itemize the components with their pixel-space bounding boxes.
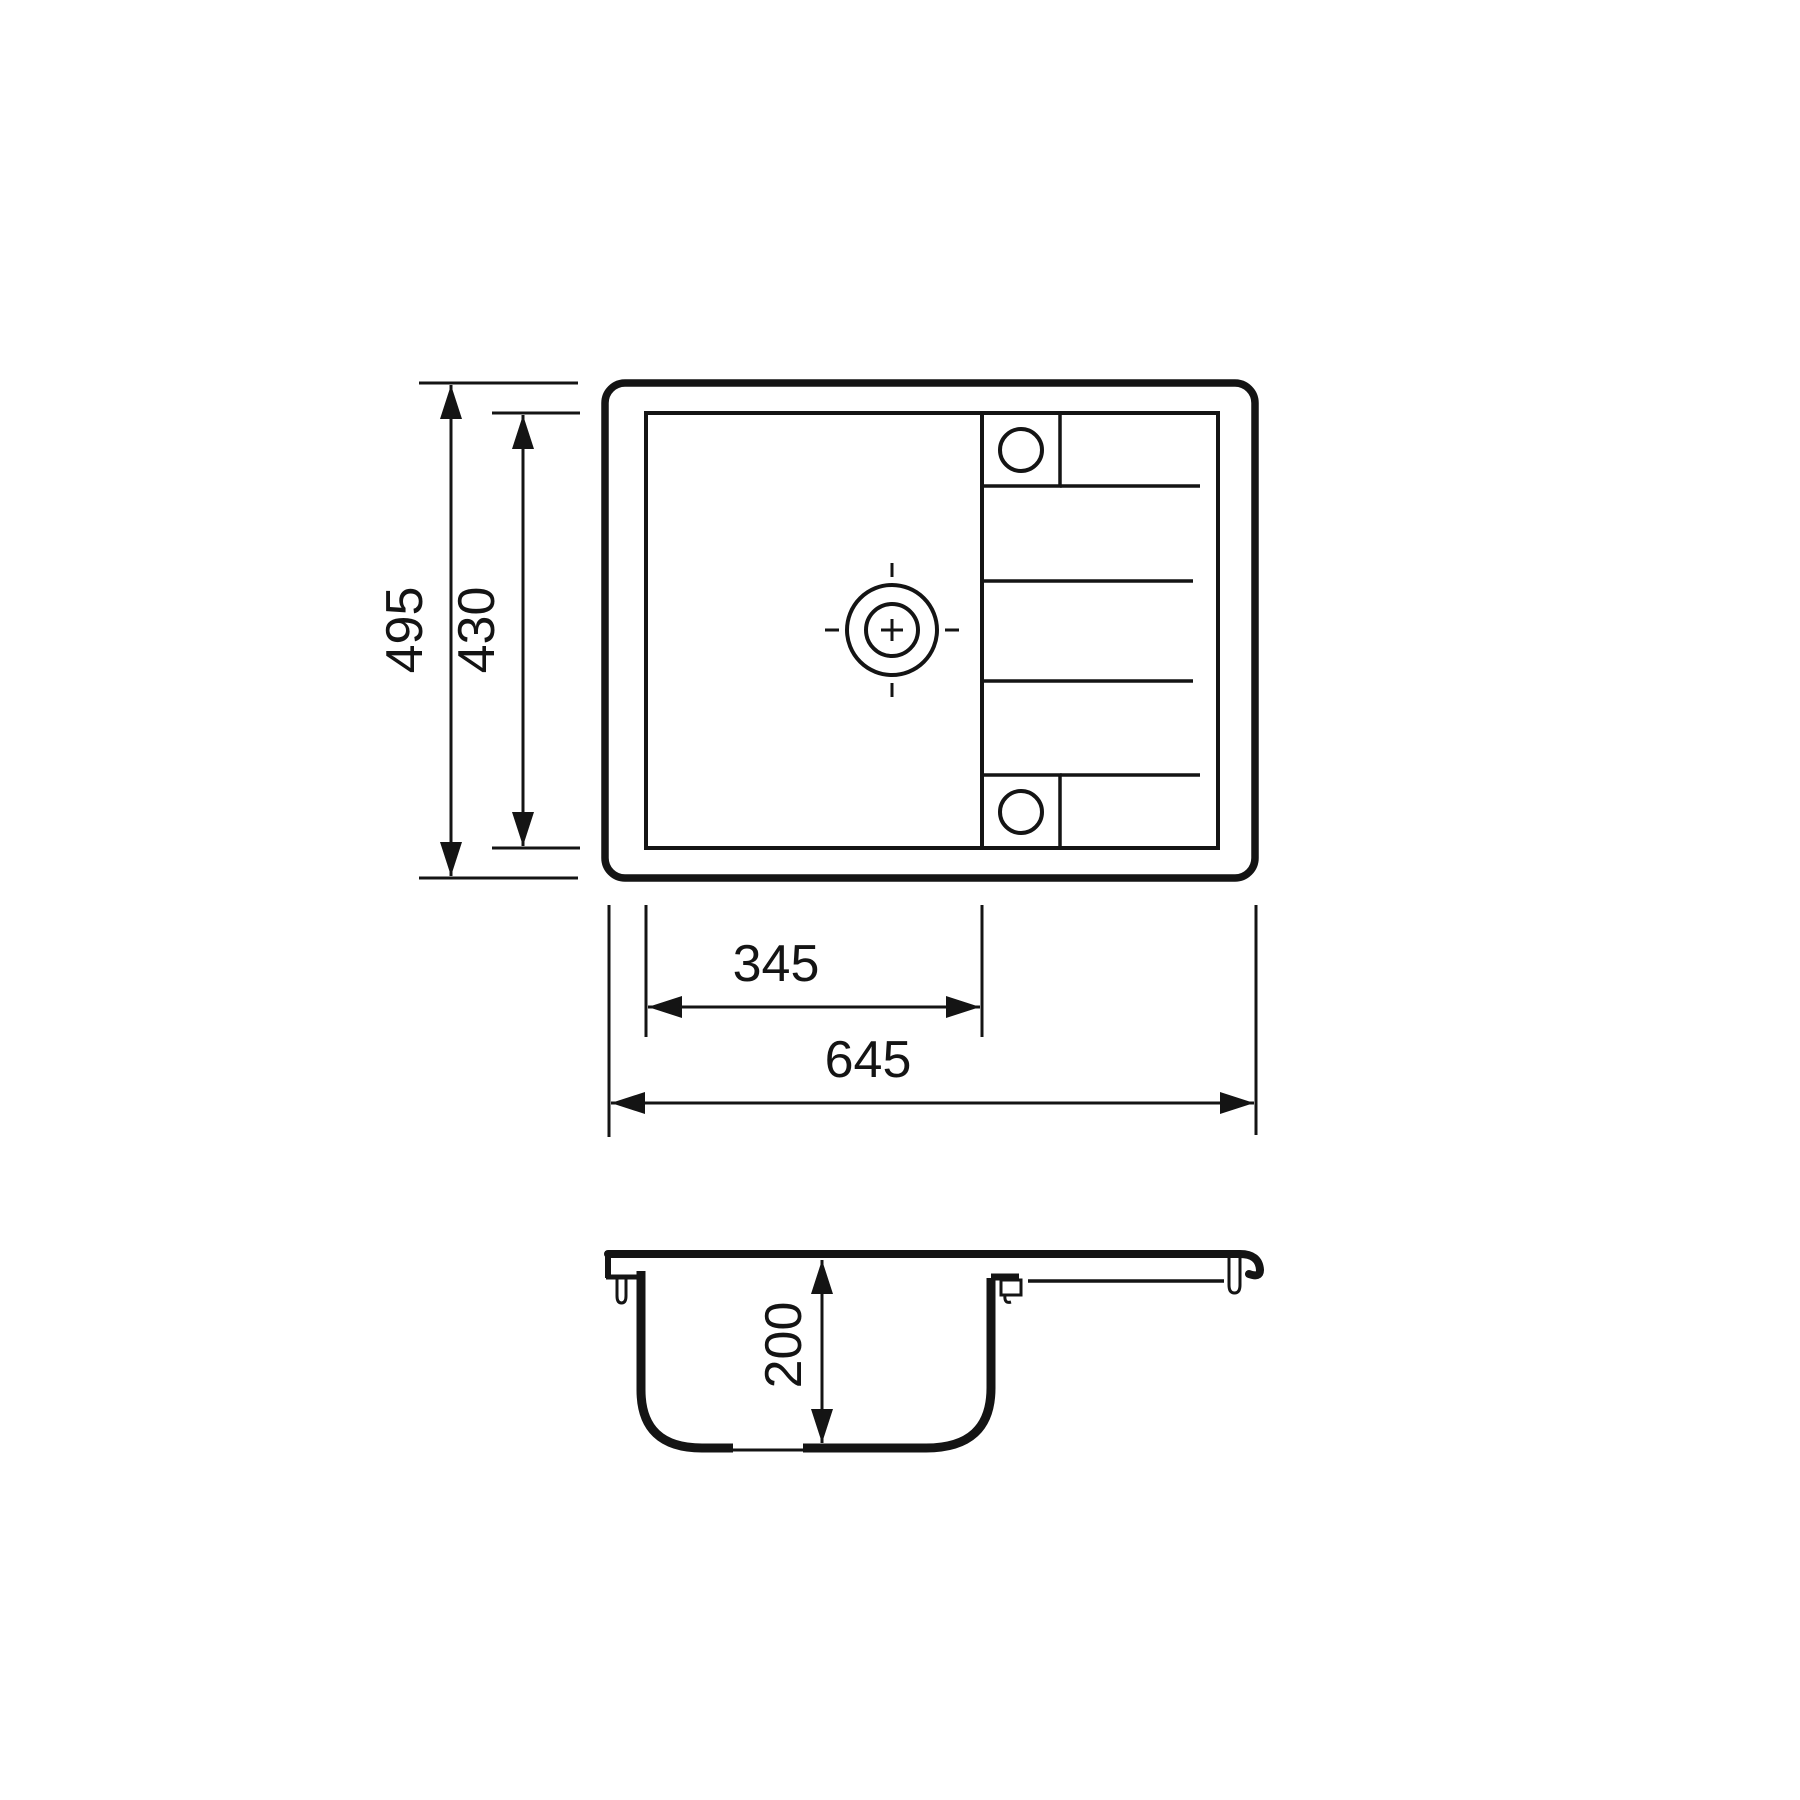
sink-technical-drawing: 495 430 345 645 [0,0,1800,1800]
arrowhead-down [811,1409,833,1443]
arrowhead-left [611,1092,645,1114]
section-right-notch [1001,1280,1021,1295]
technical-drawing-page: 495 430 345 645 [0,0,1800,1800]
section-right-clip-tab [1229,1258,1240,1293]
arrowhead-down [440,842,462,876]
section-view: 200 [606,1251,1260,1457]
arrowhead-right [946,996,980,1018]
dim-label-430: 430 [448,587,506,674]
arrowhead-left [648,996,682,1018]
arrowhead-right [1220,1092,1254,1114]
arrowhead-up [440,385,462,419]
plan-tap-box-top [982,413,1060,486]
plan-tap-hole-bottom [1000,791,1042,833]
arrowhead-down [512,812,534,846]
dim-label-495: 495 [376,587,434,674]
dim-label-200: 200 [755,1302,813,1389]
plan-tap-box-bottom [982,775,1060,848]
arrowhead-up [811,1260,833,1294]
dimension-bowl-width: 345 [646,905,982,1037]
plan-view [605,383,1255,878]
dimension-bowl-depth: 200 [755,1260,833,1443]
dimension-overall-width: 645 [609,905,1256,1137]
arrowhead-up [512,415,534,449]
plan-drain-marker [825,563,959,697]
plan-outer-rim [605,383,1255,878]
dim-label-645: 645 [825,1031,912,1089]
dimension-inner-depth: 430 [448,413,580,848]
plan-tap-hole-top [1000,429,1042,471]
section-deck-top [608,1254,1260,1275]
dim-label-345: 345 [733,935,820,993]
section-left-clip-tab [617,1279,626,1303]
plan-inner-edge [646,413,1218,848]
